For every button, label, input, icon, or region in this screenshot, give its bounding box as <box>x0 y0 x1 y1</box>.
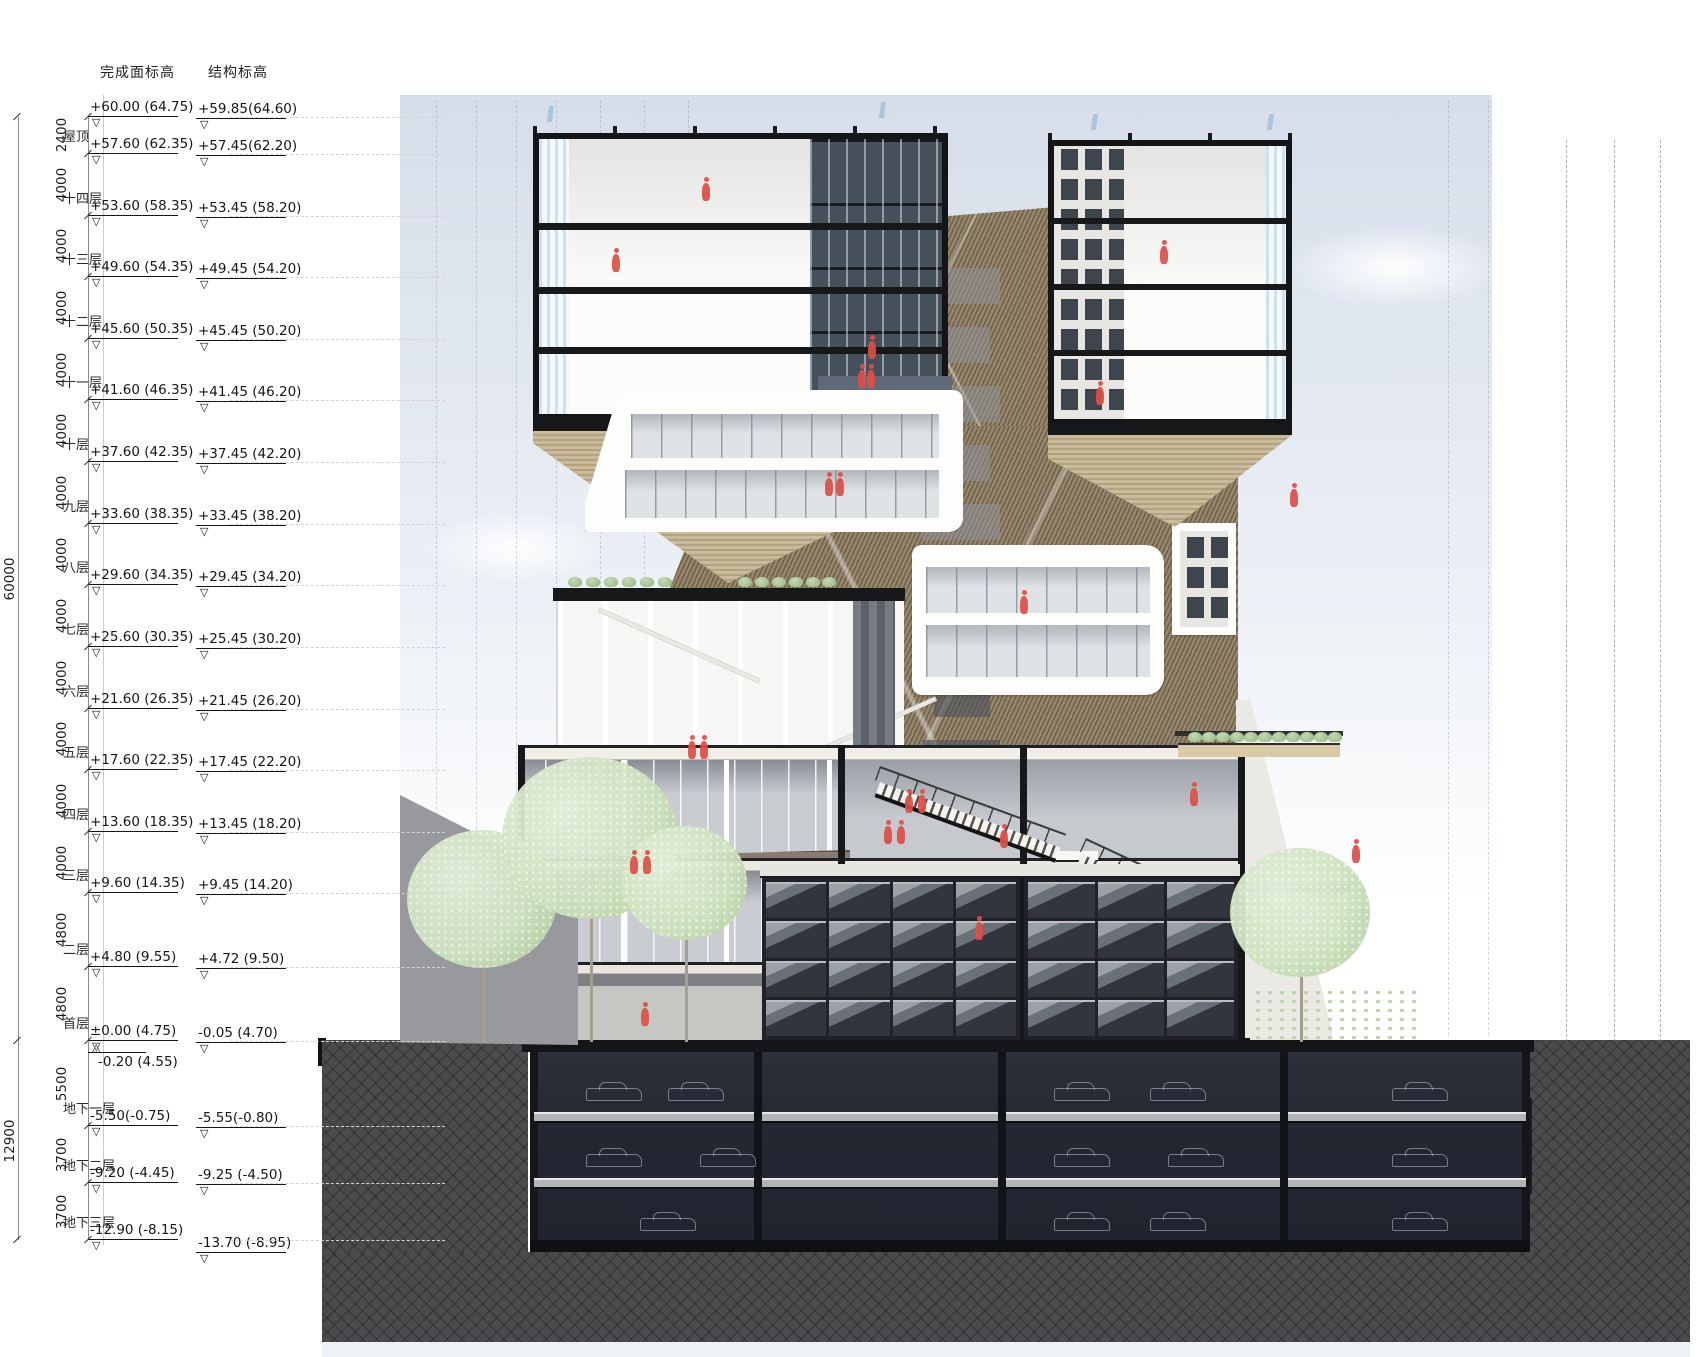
roof-deck-band <box>818 376 952 391</box>
elevation-triangle-icon: ▽ <box>200 895 208 906</box>
elevation-triangle-icon: ▽ <box>92 967 100 978</box>
elevation-value: ±0.00 (4.75) <box>90 1023 176 1039</box>
construction-line <box>1660 140 1661 1042</box>
car-outline <box>1150 1218 1206 1231</box>
seating-cell <box>829 882 889 918</box>
elevation-line <box>196 217 286 218</box>
floor-label: 九层 <box>63 496 89 515</box>
seating-cell <box>956 921 1016 957</box>
level-guide-line <box>230 709 445 710</box>
elevation-line <box>196 648 286 649</box>
level-guide-line <box>230 1126 445 1127</box>
elevation-triangle-icon: ▽ <box>92 1240 100 1251</box>
glazed-volume-mid <box>585 390 963 532</box>
car-outline <box>640 1218 696 1231</box>
plant-tuft <box>738 577 752 587</box>
elevation-value: -0.05 (4.70) <box>198 1025 278 1041</box>
seating-cell <box>829 921 889 957</box>
level-guide-line <box>230 585 445 586</box>
elevation-value: +53.45 (58.20) <box>198 200 301 216</box>
elevation-value: +41.45 (46.20) <box>198 384 301 400</box>
plant-tuft <box>806 577 820 587</box>
person-icon <box>1020 596 1028 614</box>
grid-line <box>1448 100 1449 1035</box>
chain-tick <box>13 1037 21 1045</box>
car-outline <box>1392 1154 1448 1167</box>
level-guide-line <box>230 154 445 155</box>
plant-tuft <box>1328 732 1342 742</box>
box-floor <box>567 139 812 414</box>
dimension-value: 5500 <box>54 1066 70 1100</box>
elevation-line <box>88 646 178 647</box>
floor-label: 首层 <box>63 1013 89 1032</box>
grid-line <box>1488 100 1489 1035</box>
elevation-value: -12.90 (-8.15) <box>90 1222 183 1238</box>
seating-cell <box>1167 882 1234 918</box>
elevation-value: +9.60 (14.35) <box>90 875 185 891</box>
elevation-triangle-icon: ▽ <box>200 526 208 537</box>
plant-tuft <box>1202 732 1216 742</box>
elevation-value: +37.60 (42.35) <box>90 444 193 460</box>
seating-cell <box>1167 921 1234 957</box>
level-guide-line <box>230 400 445 401</box>
seating-cell <box>956 961 1016 997</box>
elevation-triangle-icon: ▽ <box>200 587 208 598</box>
person-icon <box>918 795 926 813</box>
seating-cell <box>893 921 953 957</box>
elevation-line <box>88 892 178 893</box>
struct-elevation-marker: +41.45 (46.20)▽ <box>196 384 326 434</box>
elevation-line <box>88 708 178 709</box>
person-icon <box>643 856 651 874</box>
person-icon <box>858 370 866 388</box>
person-icon <box>905 795 913 813</box>
elevation-triangle-icon: ▽ <box>92 277 100 288</box>
seating-cell <box>766 1000 826 1036</box>
elevation-value: +13.45 (18.20) <box>198 816 301 832</box>
seating-cell <box>893 1000 953 1036</box>
elevation-value-sub: -0.20 (4.55) <box>98 1054 178 1070</box>
person-icon <box>867 370 875 388</box>
seating-cell <box>766 882 826 918</box>
plant-tuft <box>604 577 618 587</box>
seating-cell <box>956 882 1016 918</box>
elevation-value: -9.20 (-4.45) <box>90 1165 175 1181</box>
elevation-line <box>196 340 286 341</box>
floor-label: 十层 <box>63 434 89 453</box>
struct-elevation-marker: +53.45 (58.20)▽ <box>196 200 326 250</box>
terrace-deck-right <box>1178 743 1340 757</box>
rounded-white-box <box>912 545 1164 695</box>
elevation-value: -9.25 (-4.50) <box>198 1167 283 1183</box>
floor-slab-4f <box>518 745 1245 760</box>
elevation-line <box>196 710 286 711</box>
elevation-value: +13.60 (18.35) <box>90 814 193 830</box>
elevation-triangle-icon: ▽ <box>200 464 208 475</box>
elevation-value: +53.60 (58.35) <box>90 198 193 214</box>
glazing-row <box>631 414 939 458</box>
elevation-line <box>196 968 286 969</box>
level-guide-line <box>230 647 445 648</box>
box-facade-left <box>1054 146 1124 419</box>
person-icon <box>1190 788 1198 806</box>
elevation-triangle-icon: ▽ <box>92 1183 100 1194</box>
car-outline <box>1054 1088 1110 1101</box>
elevation-value: +29.45 (34.20) <box>198 569 301 585</box>
car-outline <box>1150 1088 1206 1101</box>
floor-label: 七层 <box>63 619 89 638</box>
elevation-line <box>88 276 178 277</box>
ground-slab <box>522 1040 1534 1052</box>
floor-label: 五层 <box>63 742 89 761</box>
elevation-triangle-icon: ▽ <box>92 339 100 350</box>
elevation-line <box>88 116 178 117</box>
car-outline <box>1168 1154 1224 1167</box>
elevation-up-triangle-icon: △ <box>92 1042 100 1053</box>
chain-tick <box>13 113 21 121</box>
elevation-triangle-icon: ▽ <box>200 772 208 783</box>
person-icon <box>641 1008 649 1026</box>
seating-cell <box>766 961 826 997</box>
person-icon <box>884 826 892 844</box>
elevation-line <box>88 1040 178 1041</box>
elevation-value: +60.00 (64.75) <box>90 99 193 115</box>
struct-elevation-marker: +57.45(62.20)▽ <box>196 138 326 188</box>
elevation-triangle-icon: ▽ <box>200 119 208 130</box>
elevation-value: -5.50(-0.75) <box>90 1108 170 1124</box>
elevation-line <box>196 833 286 834</box>
elevation-line <box>88 338 178 339</box>
seating-cell <box>1167 1000 1234 1036</box>
elevation-line <box>88 1182 178 1183</box>
elevation-triangle-icon: ▽ <box>200 218 208 229</box>
floor-label: 三层 <box>63 865 89 884</box>
elevation-triangle-icon: ▽ <box>92 647 100 658</box>
pavilion-roof-slab <box>553 588 905 601</box>
level-guide-line <box>230 339 445 340</box>
plant-tuft <box>822 577 836 587</box>
seating-cell <box>893 961 953 997</box>
elevation-value: +57.60 (62.35) <box>90 136 193 152</box>
floor-label: 四层 <box>63 804 89 823</box>
elevation-value: +9.45 (14.20) <box>198 877 293 893</box>
plant-tuft <box>1258 732 1272 742</box>
level-guide-line <box>230 1183 445 1184</box>
plant-tuft <box>622 577 636 587</box>
seating-cell <box>766 921 826 957</box>
elevation-line <box>88 966 178 967</box>
elevation-value: +45.45 (50.20) <box>198 323 301 339</box>
elevation-line <box>196 586 286 587</box>
elevation-line <box>196 1252 286 1253</box>
car-outline <box>1392 1218 1448 1231</box>
floor-slab <box>539 223 942 230</box>
seating-cell <box>1098 1000 1165 1036</box>
person-icon <box>897 826 905 844</box>
struct-elevation-marker: -13.70 (-8.95)▽ <box>196 1235 326 1285</box>
struct-elevation-marker: +33.45 (38.20)▽ <box>196 508 326 558</box>
person-icon <box>975 922 983 940</box>
person-icon <box>612 254 620 272</box>
elevation-value: +57.45(62.20) <box>198 138 297 154</box>
struct-elevation-marker: +29.45 (34.20)▽ <box>196 569 326 619</box>
elevation-line <box>88 584 178 585</box>
elevation-line <box>196 118 286 119</box>
elevation-value: +21.60 (26.35) <box>90 691 193 707</box>
elevation-triangle-icon: ▽ <box>200 156 208 167</box>
car-outline <box>586 1154 642 1167</box>
struct-elevation-marker: -0.05 (4.70)▽ <box>196 1025 326 1075</box>
elevation-value: +21.45 (26.20) <box>198 693 301 709</box>
elevation-line <box>196 155 286 156</box>
plant-tuft <box>1216 732 1230 742</box>
person-icon <box>836 478 844 496</box>
elevation-triangle-icon: ▽ <box>200 1043 208 1054</box>
elevation-line <box>196 463 286 464</box>
elevation-triangle-icon: ▽ <box>92 216 100 227</box>
seating-cell <box>829 1000 889 1036</box>
elevation-value: +17.45 (22.20) <box>198 754 301 770</box>
person-icon <box>1352 845 1360 863</box>
basement-column <box>998 1052 1006 1240</box>
seating-cell <box>1028 921 1095 957</box>
floor-label: 屋顶 <box>63 126 89 145</box>
seating-cell <box>1028 882 1095 918</box>
plant-tuft <box>640 577 654 587</box>
glazing-row <box>926 567 1150 613</box>
tree-canopy <box>1230 848 1370 977</box>
level-guide-line <box>230 462 445 463</box>
dimension-chain-outer <box>18 117 19 1240</box>
struct-elevation-marker: +4.72 (9.50)▽ <box>196 951 326 1001</box>
column-header-finish: 完成面标高 <box>100 62 175 82</box>
plant-tuft <box>586 577 600 587</box>
plant-tuft <box>568 577 582 587</box>
elevation-triangle-icon: ▽ <box>200 711 208 722</box>
elevation-value: +17.60 (22.35) <box>90 752 193 768</box>
level-guide-line <box>230 832 445 833</box>
car-outline <box>700 1154 756 1167</box>
struct-elevation-marker: +37.45 (42.20)▽ <box>196 446 326 496</box>
plant-tuft <box>1230 732 1244 742</box>
facade-window-frame <box>1172 523 1236 635</box>
elevation-value: +59.85(64.60) <box>198 101 297 117</box>
basement-slab <box>534 1112 1526 1123</box>
elevation-triangle-icon: ▽ <box>92 117 100 128</box>
seating-cell <box>893 882 953 918</box>
elevation-line <box>88 215 178 216</box>
elevation-triangle-icon: ▽ <box>200 649 208 660</box>
elevation-line <box>196 1127 286 1128</box>
seating-cell <box>956 1000 1016 1036</box>
elevation-value: +25.60 (30.35) <box>90 629 193 645</box>
struct-elevation-marker: +13.45 (18.20)▽ <box>196 816 326 866</box>
struct-elevation-marker: -9.25 (-4.50)▽ <box>196 1167 326 1217</box>
elevation-value: +49.45 (54.20) <box>198 261 301 277</box>
person-icon <box>825 478 833 496</box>
struct-elevation-marker: +17.45 (22.20)▽ <box>196 754 326 804</box>
level-guide-line <box>230 893 445 894</box>
elevation-line <box>196 1042 286 1043</box>
elevation-triangle-icon: ▽ <box>92 154 100 165</box>
plant-tuft <box>1300 732 1314 742</box>
floor-slab <box>539 287 942 294</box>
level-guide-line <box>230 1240 445 1241</box>
car-outline <box>1054 1154 1110 1167</box>
elevation-legend: 完成面标高 结构标高 6000012900+60.00 (64.75)▽+59.… <box>0 0 320 1357</box>
elevation-triangle-icon: ▽ <box>200 402 208 413</box>
window-glazing <box>1180 531 1228 627</box>
level-guide-line <box>230 524 445 525</box>
elevation-line <box>88 769 178 770</box>
overall-dim-upper: 60000 <box>2 558 18 601</box>
glazing-row <box>625 470 939 518</box>
elevation-value: +49.60 (54.35) <box>90 259 193 275</box>
struct-elevation-marker: +9.45 (14.20)▽ <box>196 877 326 927</box>
struct-elevation-marker: -5.55(-0.80)▽ <box>196 1110 326 1160</box>
seating-cell <box>1098 921 1165 957</box>
struct-elevation-marker: +49.45 (54.20)▽ <box>196 261 326 311</box>
level-guide-line <box>230 770 445 771</box>
overall-dim-lower: 12900 <box>2 1119 18 1162</box>
plant-tuft <box>1188 732 1202 742</box>
elevation-value: +29.60 (34.35) <box>90 567 193 583</box>
level-guide-line <box>230 216 445 217</box>
elevation-triangle-icon: ▽ <box>200 834 208 845</box>
seating-cell <box>1028 1000 1095 1036</box>
elevation-value: +25.45 (30.20) <box>198 631 301 647</box>
seating-cell <box>829 961 889 997</box>
elevation-triangle-icon: ▽ <box>200 1253 208 1264</box>
tree-canopy <box>623 826 747 940</box>
elevation-value: +33.60 (38.35) <box>90 506 193 522</box>
elevation-triangle-icon: ▽ <box>92 1126 100 1137</box>
elevation-value: -5.55(-0.80) <box>198 1110 278 1126</box>
base-strip <box>322 1342 1690 1357</box>
elevation-triangle-icon: ▽ <box>200 279 208 290</box>
construction-line <box>1614 140 1615 1042</box>
elevation-value: +41.60 (46.35) <box>90 382 193 398</box>
box-facade-right <box>810 139 942 414</box>
elevation-value: +4.72 (9.50) <box>198 951 284 967</box>
floor-slab <box>1054 350 1286 356</box>
elevation-line <box>196 278 286 279</box>
floor-label: 八层 <box>63 557 89 576</box>
elevation-line <box>88 831 178 832</box>
architectural-section-drawing: 完成面标高 结构标高 6000012900+60.00 (64.75)▽+59.… <box>0 0 1700 1357</box>
elevation-line <box>88 1239 178 1240</box>
elevation-line <box>196 525 286 526</box>
floor-label: 六层 <box>63 681 89 700</box>
person-icon <box>1096 387 1104 405</box>
elevation-triangle-icon: ▽ <box>92 462 100 473</box>
struct-elevation-marker: +21.45 (26.20)▽ <box>196 693 326 743</box>
box-floor <box>1124 146 1266 419</box>
elevation-triangle-icon: ▽ <box>92 709 100 720</box>
plant-tuft <box>1272 732 1286 742</box>
plant-tuft <box>789 577 803 587</box>
elevation-value: +37.45 (42.20) <box>198 446 301 462</box>
cantilever-box-right <box>1048 140 1292 425</box>
level-guide-line <box>230 117 445 118</box>
elevation-triangle-icon: ▽ <box>92 400 100 411</box>
elevation-line <box>88 153 178 154</box>
plant-tuft <box>1286 732 1300 742</box>
glazing-row <box>926 625 1150 677</box>
basement-column <box>754 1052 762 1240</box>
earth-bottom <box>322 1252 1690 1342</box>
garden-shrubs <box>1252 988 1420 1042</box>
elevation-line <box>88 1125 178 1126</box>
plant-tuft <box>658 577 672 587</box>
plant-tuft <box>755 577 769 587</box>
elevation-triangle-icon: ▽ <box>92 832 100 843</box>
person-icon <box>1290 489 1298 507</box>
elevation-value: +45.60 (50.35) <box>90 321 193 337</box>
person-icon <box>630 856 638 874</box>
elevation-triangle-icon: ▽ <box>92 585 100 596</box>
elevation-value: +33.45 (38.20) <box>198 508 301 524</box>
elevation-triangle-icon: ▽ <box>92 524 100 535</box>
elevation-line <box>196 1184 286 1185</box>
plant-tuft <box>1244 732 1258 742</box>
basement-bottom-slab <box>530 1240 1530 1252</box>
car-outline <box>1054 1218 1110 1231</box>
elevation-triangle-icon: ▽ <box>92 770 100 781</box>
elevation-triangle-icon: ▽ <box>200 1185 208 1196</box>
basement-column <box>1280 1052 1288 1240</box>
floor-slab <box>539 347 942 354</box>
elevation-line <box>88 523 178 524</box>
box-glass-right <box>1266 146 1286 419</box>
column-header-struct: 结构标高 <box>208 62 268 82</box>
construction-line <box>1566 140 1567 1042</box>
level-guide-line <box>230 967 445 968</box>
level-guide-line <box>230 277 445 278</box>
elevation-line <box>196 894 286 895</box>
floor-slab <box>1054 218 1286 224</box>
floor-label: 二层 <box>63 939 89 958</box>
person-icon <box>1000 830 1008 848</box>
level-guide-line <box>230 1041 445 1042</box>
cloud <box>1280 225 1510 310</box>
car-outline <box>586 1088 642 1101</box>
auditorium-block <box>762 878 1020 1040</box>
seating-cell <box>1098 961 1165 997</box>
cantilever-soffit-slab <box>1048 423 1292 435</box>
elevation-value: +4.80 (9.55) <box>90 949 176 965</box>
struct-elevation-marker: +25.45 (30.20)▽ <box>196 631 326 681</box>
seating-cell <box>1028 961 1095 997</box>
elevation-line <box>88 399 178 400</box>
elevation-line <box>196 401 286 402</box>
audit-edge-band <box>760 864 1240 878</box>
struct-elevation-marker: +45.45 (50.20)▽ <box>196 323 326 373</box>
elevation-triangle-icon: ▽ <box>200 969 208 980</box>
person-icon <box>700 741 708 759</box>
elevation-triangle-icon: ▽ <box>92 893 100 904</box>
chain-tick <box>13 1236 21 1244</box>
elevation-value: -13.70 (-8.95) <box>198 1235 291 1251</box>
elevation-triangle-icon: ▽ <box>200 1128 208 1139</box>
car-outline <box>668 1088 724 1101</box>
cloud <box>420 510 610 585</box>
seating-cell <box>1167 961 1234 997</box>
plant-tuft <box>1314 732 1328 742</box>
person-icon <box>702 183 710 201</box>
person-icon <box>688 741 696 759</box>
box-glass-left <box>539 139 569 414</box>
